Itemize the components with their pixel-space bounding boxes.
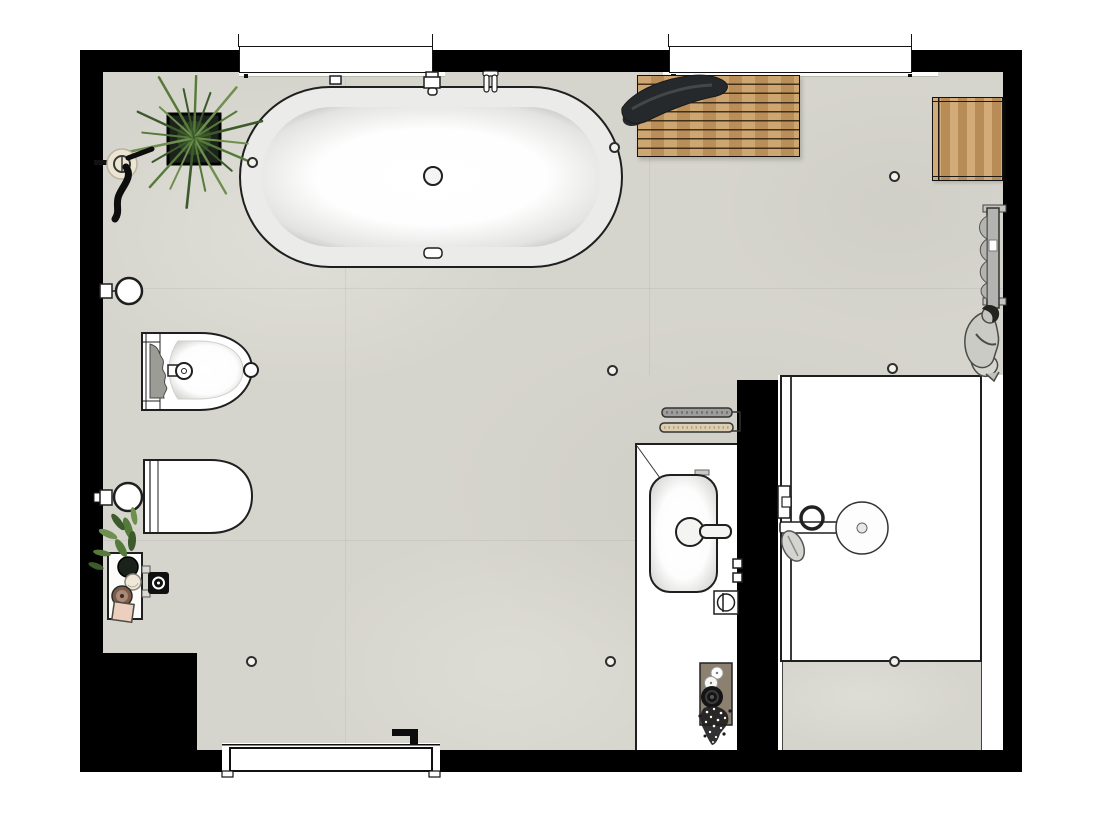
hand-shower-icon — [483, 71, 498, 92]
door-handle-icon — [392, 729, 418, 745]
bidet-tap-icon — [176, 363, 192, 379]
decor-tray — [690, 656, 742, 750]
entry-door — [216, 720, 446, 782]
paper-holder-upper — [96, 274, 148, 310]
wall-right — [1003, 50, 1022, 772]
ceiling-light — [889, 656, 900, 667]
soap-bar — [112, 602, 134, 623]
radiator-towel-folds — [980, 216, 988, 299]
ceiling-light — [246, 656, 257, 667]
bath-towel — [612, 68, 752, 138]
door-frame-cap — [222, 771, 233, 777]
wall-corner-block — [82, 653, 197, 752]
shower-fittings — [770, 480, 900, 572]
wall-control — [140, 560, 174, 602]
tub-wall-fixtures — [240, 62, 506, 98]
door-frame-cap — [429, 771, 440, 777]
wall-bracket-icon — [330, 76, 341, 84]
tub-overflow — [424, 167, 442, 185]
person — [956, 300, 1008, 384]
sill-mark — [908, 74, 912, 77]
sink — [632, 440, 742, 620]
window-frame-tick — [432, 34, 433, 47]
ceiling-light — [609, 142, 620, 153]
tub-filler-icon — [424, 72, 440, 95]
bathtub — [236, 83, 626, 271]
bidet-drain-knob — [244, 363, 258, 377]
sink-faucet-handle — [700, 525, 731, 538]
floor-patch-below-shower — [782, 662, 982, 750]
towel-radiator — [976, 200, 1010, 312]
door-leaf — [230, 748, 432, 771]
counter-corner-line — [637, 446, 660, 478]
drain-valve — [714, 591, 738, 614]
window-frame-tick — [668, 34, 669, 47]
ceiling-light — [605, 656, 616, 667]
ceiling-light — [887, 363, 898, 374]
window-frame-tick — [911, 34, 912, 47]
towel-rail — [652, 400, 746, 440]
bidet — [136, 328, 260, 416]
ceiling-light — [247, 157, 258, 168]
tile-seam — [103, 288, 1003, 289]
ceiling-light — [889, 171, 900, 182]
ceiling-light — [607, 365, 618, 376]
bathroom-floor-plan — [0, 0, 1110, 820]
wall-hook — [94, 140, 166, 224]
tub-drain — [424, 248, 442, 258]
window-frame-tick — [238, 34, 239, 47]
black-bowl — [701, 686, 723, 708]
stool — [932, 97, 1003, 181]
